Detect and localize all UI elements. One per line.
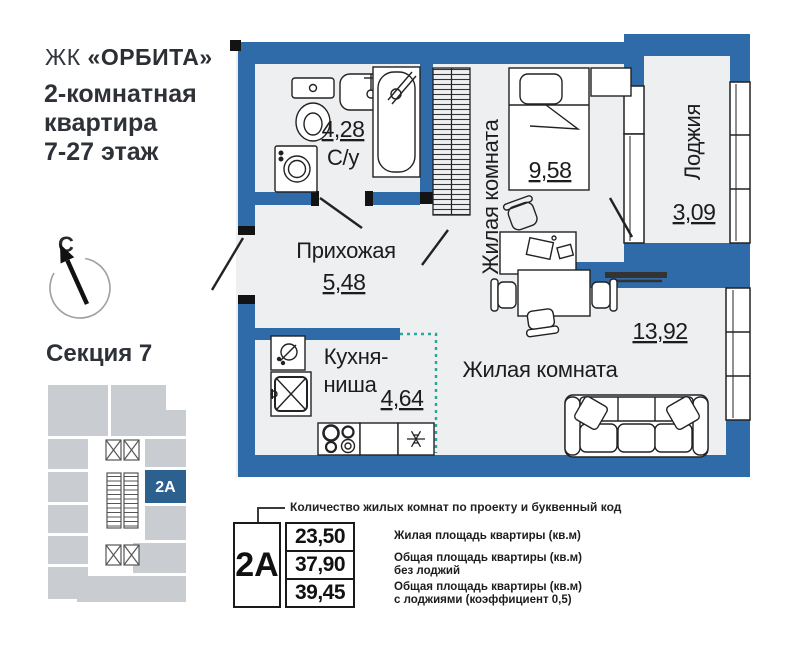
legend-callout-text: Количество жилых комнат по проекту и бук… [290,500,621,514]
kitchen-label-line1: Кухня- [324,344,388,369]
living-room-window [726,288,750,420]
legend-label-line: Общая площадь квартиры (кв.м) [394,552,582,565]
brand: ЖК «ОРБИТА» [45,44,213,71]
bathroom-area: 4,28 [322,116,365,142]
unit-highlight-label: 2А [155,479,176,496]
dining-chair-bottom [524,308,559,337]
legend-label-line: без лоджий [394,565,582,578]
legend-label-living: Жилая площадь квартиры (кв.м) [394,530,581,543]
living-area: 13,92 [632,318,687,344]
section-minimap: 2А [28,380,203,620]
legend-value-living: 23,50 [287,524,353,550]
legend-values-table: 23,50 37,90 39,45 [285,522,355,608]
loggia-area: 3,09 [673,199,716,225]
hallway-area: 5,48 [323,269,366,295]
brand-prefix: ЖК [45,44,81,70]
legend-label-line: с лоджиями (коэффициент 0,5) [394,594,582,607]
hallway-label: Прихожая [296,238,396,263]
living-label: Жилая комната [463,357,619,382]
brand-name: «ОРБИТА» [88,44,213,70]
legend-value-total: 37,90 [287,550,353,578]
bedroom-area: 9,58 [529,157,572,183]
legend-unit-code: 2А [233,522,281,608]
legend-value-total-with-loggia: 39,45 [287,578,353,606]
dining-table [518,270,590,316]
counter [360,423,398,455]
section-title: Секция 7 [46,340,152,368]
legend-label-line: Жилая площадь квартиры (кв.м) [394,530,581,543]
washing-machine [275,146,317,192]
loggia-label: Лоджия [680,104,705,180]
floorplan-page: ЖК «ОРБИТА» 2-комнатная квартира 7-27 эт… [0,0,800,660]
compass: С [40,222,130,322]
legend-label-line: Общая площадь квартиры (кв.м) [394,581,582,594]
dining-chair-left [491,279,516,311]
subtitle-line: 2-комнатная [44,80,197,109]
subtitle-line: 7-27 этаж [44,138,197,167]
loggia-window [730,82,750,243]
wardrobe [433,68,470,215]
legend-label-total: Общая площадь квартиры (кв.м) без лоджий [394,552,582,578]
sofa [565,395,708,457]
kitchen-label-line2: ниша [323,372,377,397]
subtitle-line: квартира [44,109,197,138]
kitchen-area: 4,64 [381,385,424,411]
legend-label-total-with-loggia: Общая площадь квартиры (кв.м) с лоджиями… [394,581,582,607]
bathtub [373,67,420,177]
compass-arrow-shaft [67,260,87,304]
bathroom-label: С/у [327,145,359,170]
stairs-icons [107,473,138,528]
desk [500,232,576,274]
apartment-subtitle: 2-комнатная квартира 7-27 этаж [44,80,197,167]
bedroom-label: Жилая комната [478,118,503,274]
nightstand [591,68,631,96]
kitchen-sink [271,377,307,411]
floorplan-drawing: 4,28 С/у Прихожая 5,48 Кухня- ниша 4,64 … [202,32,768,484]
dining-chair-right [592,279,617,311]
